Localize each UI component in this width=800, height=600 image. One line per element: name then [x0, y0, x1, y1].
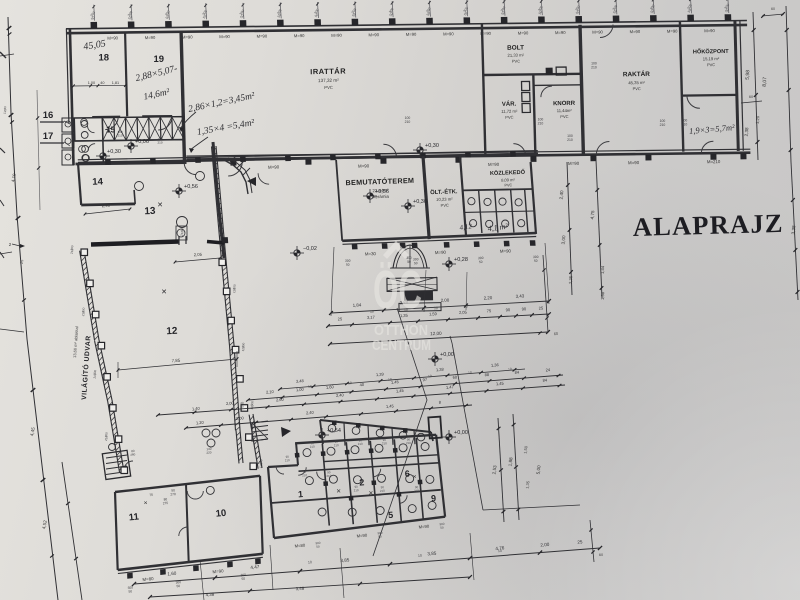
svg-text:13,60 m² ablakkal: 13,60 m² ablakkal — [72, 326, 79, 358]
svg-text:M=90: M=90 — [418, 523, 430, 529]
svg-text:210: 210 — [285, 458, 290, 462]
svg-text:3,85: 3,85 — [427, 551, 437, 557]
svg-text:M=90: M=90 — [435, 250, 447, 255]
svg-text:KNORR: KNORR — [553, 101, 576, 107]
svg-text:ALAPRAJZ: ALAPRAJZ — [632, 208, 784, 242]
svg-text:50: 50 — [440, 525, 444, 529]
svg-text:VÁR.: VÁR. — [502, 101, 517, 108]
svg-text:1,45: 1,45 — [496, 381, 505, 387]
svg-text:2,38: 2,38 — [744, 127, 750, 137]
svg-text:M=210: M=210 — [707, 159, 721, 164]
svg-text:1,45: 1,45 — [396, 388, 405, 394]
svg-text:2,05: 2,05 — [194, 252, 203, 258]
svg-text:M=90: M=90 — [518, 30, 529, 35]
svg-text:1,20: 1,20 — [196, 420, 205, 426]
svg-text:10: 10 — [348, 381, 352, 385]
svg-text:PVC: PVC — [560, 114, 568, 119]
svg-text:PVC: PVC — [324, 85, 333, 90]
svg-text:1,50: 1,50 — [600, 291, 606, 300]
svg-text:10: 10 — [508, 367, 512, 371]
svg-text:45,05: 45,05 — [83, 38, 107, 52]
svg-text:14,6m²: 14,6m² — [143, 87, 171, 102]
svg-text:6: 6 — [404, 469, 410, 479]
svg-text:PVC: PVC — [707, 62, 715, 67]
svg-text:1,44: 1,44 — [600, 265, 606, 274]
svg-text:25: 25 — [577, 539, 583, 544]
svg-text:210: 210 — [117, 134, 122, 138]
svg-text:21,33 m²: 21,33 m² — [507, 52, 524, 57]
svg-text:4,38: 4,38 — [205, 592, 214, 598]
svg-text:1,47: 1,47 — [446, 384, 455, 390]
svg-text:90: 90 — [506, 307, 511, 312]
svg-text:10: 10 — [498, 549, 502, 553]
svg-text:50: 50 — [316, 544, 320, 548]
svg-text:1,9×3=5,7m²: 1,9×3=5,7m² — [689, 122, 736, 136]
svg-text:✕: ✕ — [368, 491, 373, 497]
svg-text:M=90: M=90 — [630, 29, 641, 34]
svg-text:210: 210 — [660, 123, 666, 127]
svg-text:1,50: 1,50 — [523, 445, 529, 454]
svg-text:2,88×5,07-: 2,88×5,07- — [135, 64, 179, 84]
svg-text:50: 50 — [534, 259, 538, 263]
svg-text:CENTRUM: CENTRUM — [372, 338, 431, 354]
svg-text:120: 120 — [3, 108, 8, 114]
svg-text:2,86×1,2=3,45m²: 2,86×1,2=3,45m² — [187, 91, 255, 115]
svg-text:2,00: 2,00 — [236, 415, 245, 421]
svg-text:60: 60 — [749, 95, 753, 99]
svg-text:15,19 m²: 15,19 m² — [703, 56, 720, 61]
svg-text:260: 260 — [130, 452, 136, 457]
svg-text:210: 210 — [334, 443, 339, 447]
svg-text:M=90: M=90 — [667, 29, 678, 34]
svg-text:210: 210 — [682, 123, 688, 127]
svg-text:24: 24 — [545, 367, 551, 372]
svg-text:1,00: 1,00 — [88, 81, 95, 85]
svg-text:210: 210 — [81, 311, 86, 317]
svg-text:210: 210 — [70, 248, 75, 254]
svg-text:25: 25 — [338, 316, 343, 321]
svg-text:40: 40 — [359, 382, 365, 387]
svg-text:90: 90 — [522, 306, 527, 311]
svg-text:88: 88 — [484, 372, 490, 377]
svg-text:210: 210 — [382, 441, 387, 445]
svg-text:2,40: 2,40 — [559, 190, 565, 200]
svg-text:2,53: 2,53 — [491, 465, 497, 475]
svg-text:10: 10 — [215, 508, 227, 520]
svg-text:10: 10 — [468, 371, 472, 375]
svg-text:220: 220 — [206, 450, 212, 455]
svg-text:OTTHON: OTTHON — [374, 323, 428, 339]
svg-text:10: 10 — [434, 306, 438, 310]
svg-text:210: 210 — [538, 121, 544, 125]
svg-text:M=80: M=80 — [294, 542, 306, 548]
svg-text:2,00: 2,00 — [540, 542, 550, 548]
svg-text:M=90: M=90 — [107, 35, 118, 40]
svg-text:210: 210 — [93, 373, 98, 379]
svg-text:10: 10 — [418, 554, 422, 558]
svg-text:9: 9 — [431, 493, 437, 503]
svg-text:1,88: 1,88 — [507, 457, 513, 467]
svg-text:75: 75 — [487, 308, 492, 313]
svg-text:M=90: M=90 — [294, 33, 305, 38]
svg-text:2,20: 2,20 — [484, 295, 493, 300]
svg-text:75: 75 — [149, 493, 153, 497]
svg-text:M=90: M=90 — [182, 34, 193, 39]
svg-text:VILÁGÍTÓ UDVAR: VILÁGÍTÓ UDVAR — [79, 335, 92, 400]
svg-text:84: 84 — [514, 369, 520, 374]
svg-text:10: 10 — [388, 377, 392, 381]
svg-text:18: 18 — [99, 53, 110, 64]
svg-text:M=90: M=90 — [704, 28, 715, 33]
svg-text:210: 210 — [414, 489, 419, 493]
svg-text:M=90: M=90 — [268, 164, 280, 169]
svg-text:+0,00: +0,00 — [440, 352, 454, 358]
svg-text:IRATTÁR: IRATTÁR — [310, 67, 346, 77]
svg-text:2,05: 2,05 — [459, 309, 468, 314]
svg-text:+0,06: +0,06 — [135, 139, 149, 145]
svg-text:2,00: 2,00 — [441, 297, 450, 302]
svg-text:1,59: 1,59 — [429, 311, 438, 316]
svg-text:1,35×4 =5,4m²: 1,35×4 =5,4m² — [196, 118, 255, 138]
svg-text:1,20: 1,20 — [755, 115, 761, 124]
svg-text:1,36: 1,36 — [491, 362, 500, 368]
svg-text:M=90: M=90 — [257, 34, 268, 39]
svg-text:✕: ✕ — [336, 489, 341, 495]
svg-text:210: 210 — [406, 441, 411, 445]
svg-text:M=90: M=90 — [358, 163, 370, 168]
svg-text:120: 120 — [241, 346, 246, 352]
svg-text:M=90: M=90 — [628, 160, 640, 165]
svg-text:210: 210 — [326, 474, 331, 478]
svg-text:4,19: 4,19 — [10, 173, 17, 183]
svg-text:M=90: M=90 — [212, 568, 224, 574]
svg-text:M=90: M=90 — [555, 30, 566, 35]
svg-text:50: 50 — [176, 584, 180, 588]
svg-text:45,35 m²: 45,35 m² — [628, 80, 645, 85]
svg-text:M=90: M=90 — [368, 32, 379, 37]
svg-text:15: 15 — [106, 126, 115, 135]
svg-text:50: 50 — [128, 589, 132, 593]
svg-text:1,00: 1,00 — [296, 387, 305, 393]
svg-text:50: 50 — [346, 263, 350, 267]
svg-text:210: 210 — [310, 445, 315, 449]
svg-text:2,40: 2,40 — [306, 410, 315, 416]
svg-text:1,81: 1,81 — [112, 81, 119, 85]
svg-text:PVC: PVC — [512, 59, 520, 64]
svg-text:M=90: M=90 — [488, 162, 500, 167]
svg-text:210: 210 — [157, 141, 162, 145]
svg-text:ÖLT.-ÉTK.: ÖLT.-ÉTK. — [430, 187, 458, 196]
svg-text:M=30: M=30 — [365, 251, 377, 256]
svg-text:3,00: 3,00 — [561, 235, 567, 245]
svg-text:1,45: 1,45 — [391, 379, 400, 385]
svg-text:60: 60 — [771, 7, 775, 11]
svg-text:25: 25 — [20, 259, 25, 264]
svg-text:60: 60 — [554, 332, 558, 336]
svg-text:1,39: 1,39 — [376, 371, 385, 377]
svg-text:16: 16 — [43, 110, 54, 121]
svg-text:4,1 m²: 4,1 m² — [487, 222, 509, 234]
svg-text:BOLT: BOLT — [507, 44, 524, 51]
svg-text:2: 2 — [9, 242, 12, 247]
svg-text:3,48: 3,48 — [296, 378, 305, 384]
svg-text:2,35: 2,35 — [568, 275, 574, 284]
svg-text:10: 10 — [308, 560, 312, 564]
svg-text:8: 8 — [439, 399, 442, 404]
svg-text:PVC: PVC — [504, 183, 512, 187]
svg-text:✕: ✕ — [143, 501, 147, 507]
svg-text:✕: ✕ — [161, 289, 167, 296]
svg-text:−0,02: −0,02 — [303, 246, 317, 252]
svg-text:60: 60 — [452, 374, 458, 379]
svg-text:50: 50 — [479, 260, 483, 264]
svg-text:12: 12 — [166, 326, 178, 338]
svg-text:275: 275 — [163, 501, 169, 506]
svg-text:270: 270 — [170, 492, 176, 497]
svg-text:M=90: M=90 — [500, 248, 512, 253]
svg-text:10: 10 — [428, 374, 432, 378]
svg-text:5,00: 5,00 — [535, 465, 541, 475]
svg-text:2,96: 2,96 — [102, 203, 111, 209]
svg-text:+0,30: +0,30 — [425, 143, 439, 149]
svg-text:M=90: M=90 — [443, 31, 454, 36]
svg-text:HŐKÖZPONT: HŐKÖZPONT — [693, 48, 729, 56]
svg-text:120: 120 — [250, 404, 255, 410]
svg-text:PVC: PVC — [505, 115, 513, 120]
svg-text:M=80: M=80 — [142, 576, 154, 582]
svg-text:2,10: 2,10 — [266, 389, 275, 395]
svg-text:ÖC: ÖC — [373, 260, 422, 320]
svg-text:+0,28: +0,28 — [454, 257, 468, 263]
svg-text:3,38: 3,38 — [791, 225, 797, 235]
svg-text:1,40: 1,40 — [192, 406, 201, 412]
svg-text:PVC: PVC — [441, 203, 450, 208]
svg-text:2,00: 2,00 — [226, 400, 235, 406]
svg-text:✕: ✕ — [157, 202, 163, 209]
svg-text:+0,30: +0,30 — [107, 149, 121, 155]
svg-text:40: 40 — [100, 81, 104, 85]
svg-text:60: 60 — [599, 553, 603, 557]
svg-text:3,48: 3,48 — [295, 586, 304, 592]
svg-text:M=90: M=90 — [331, 33, 342, 38]
svg-text:8,09 m²: 8,09 m² — [501, 177, 515, 182]
svg-text:4,12: 4,12 — [459, 222, 473, 232]
svg-text:210: 210 — [104, 435, 109, 441]
svg-text:210: 210 — [358, 442, 363, 446]
svg-text:4,47: 4,47 — [250, 564, 260, 570]
svg-text:+0,56: +0,56 — [375, 189, 389, 195]
svg-text:14: 14 — [92, 176, 104, 187]
svg-text:8,07: 8,07 — [762, 77, 769, 87]
svg-text:RAKTÁR: RAKTÁR — [623, 69, 651, 78]
svg-text:7,85: 7,85 — [171, 358, 180, 364]
svg-text:11: 11 — [128, 511, 140, 523]
svg-text:M=90: M=90 — [356, 532, 368, 538]
svg-text:50: 50 — [241, 577, 245, 581]
svg-text:✕: ✕ — [412, 474, 417, 480]
svg-text:1,60: 1,60 — [167, 571, 177, 577]
svg-text:120: 120 — [232, 287, 237, 293]
svg-text:BEMUTATÓTEREM: BEMUTATÓTEREM — [345, 176, 414, 187]
svg-text:210: 210 — [354, 488, 359, 492]
svg-text:PVC: PVC — [633, 86, 641, 91]
svg-text:3,43: 3,43 — [516, 293, 525, 298]
svg-text:210: 210 — [405, 120, 411, 124]
svg-text:+0,00: +0,00 — [454, 430, 468, 436]
svg-text:210: 210 — [567, 138, 573, 142]
svg-text:25: 25 — [539, 305, 544, 310]
svg-text:19: 19 — [154, 54, 165, 65]
svg-text:84: 84 — [542, 377, 548, 382]
svg-text:10: 10 — [308, 384, 312, 388]
svg-text:M=90: M=90 — [592, 29, 603, 34]
svg-text:1,45: 1,45 — [386, 403, 395, 409]
svg-text:1,84: 1,84 — [353, 302, 362, 307]
svg-text:13: 13 — [144, 206, 156, 217]
svg-text:+0,56: +0,56 — [184, 184, 198, 190]
svg-text:+0,30: +0,30 — [413, 199, 427, 205]
svg-text:5,98: 5,98 — [745, 70, 752, 80]
svg-text:M=90: M=90 — [568, 161, 580, 166]
svg-text:210: 210 — [380, 489, 385, 493]
svg-text:1: 1 — [298, 489, 304, 499]
svg-text:4,52: 4,52 — [41, 519, 48, 529]
svg-text:1,38: 1,38 — [436, 367, 445, 373]
svg-text:KÖZLEKEDŐ: KÖZLEKEDŐ — [490, 169, 526, 177]
svg-text:210: 210 — [591, 66, 597, 70]
svg-text:4,45: 4,45 — [29, 426, 36, 436]
svg-text:10,23 m²: 10,23 m² — [436, 196, 453, 202]
svg-text:17: 17 — [43, 131, 54, 142]
svg-text:1,60: 1,60 — [326, 384, 335, 390]
svg-text:1,35: 1,35 — [525, 480, 531, 489]
svg-text:2,40: 2,40 — [336, 392, 345, 398]
svg-text:4,75: 4,75 — [590, 210, 596, 220]
svg-text:3,85: 3,85 — [340, 557, 350, 563]
svg-text:2: 2 — [359, 477, 365, 487]
svg-text:M=90: M=90 — [219, 34, 230, 39]
svg-text:M=90: M=90 — [145, 35, 156, 40]
svg-text:12,00: 12,00 — [430, 331, 442, 337]
svg-text:11,44m²: 11,44m² — [557, 108, 573, 113]
svg-text:2,60: 2,60 — [276, 397, 285, 403]
svg-text:11,72 m²: 11,72 m² — [501, 109, 518, 114]
svg-text:M=90: M=90 — [406, 32, 417, 37]
svg-text:137,32 m²: 137,32 m² — [318, 78, 339, 83]
